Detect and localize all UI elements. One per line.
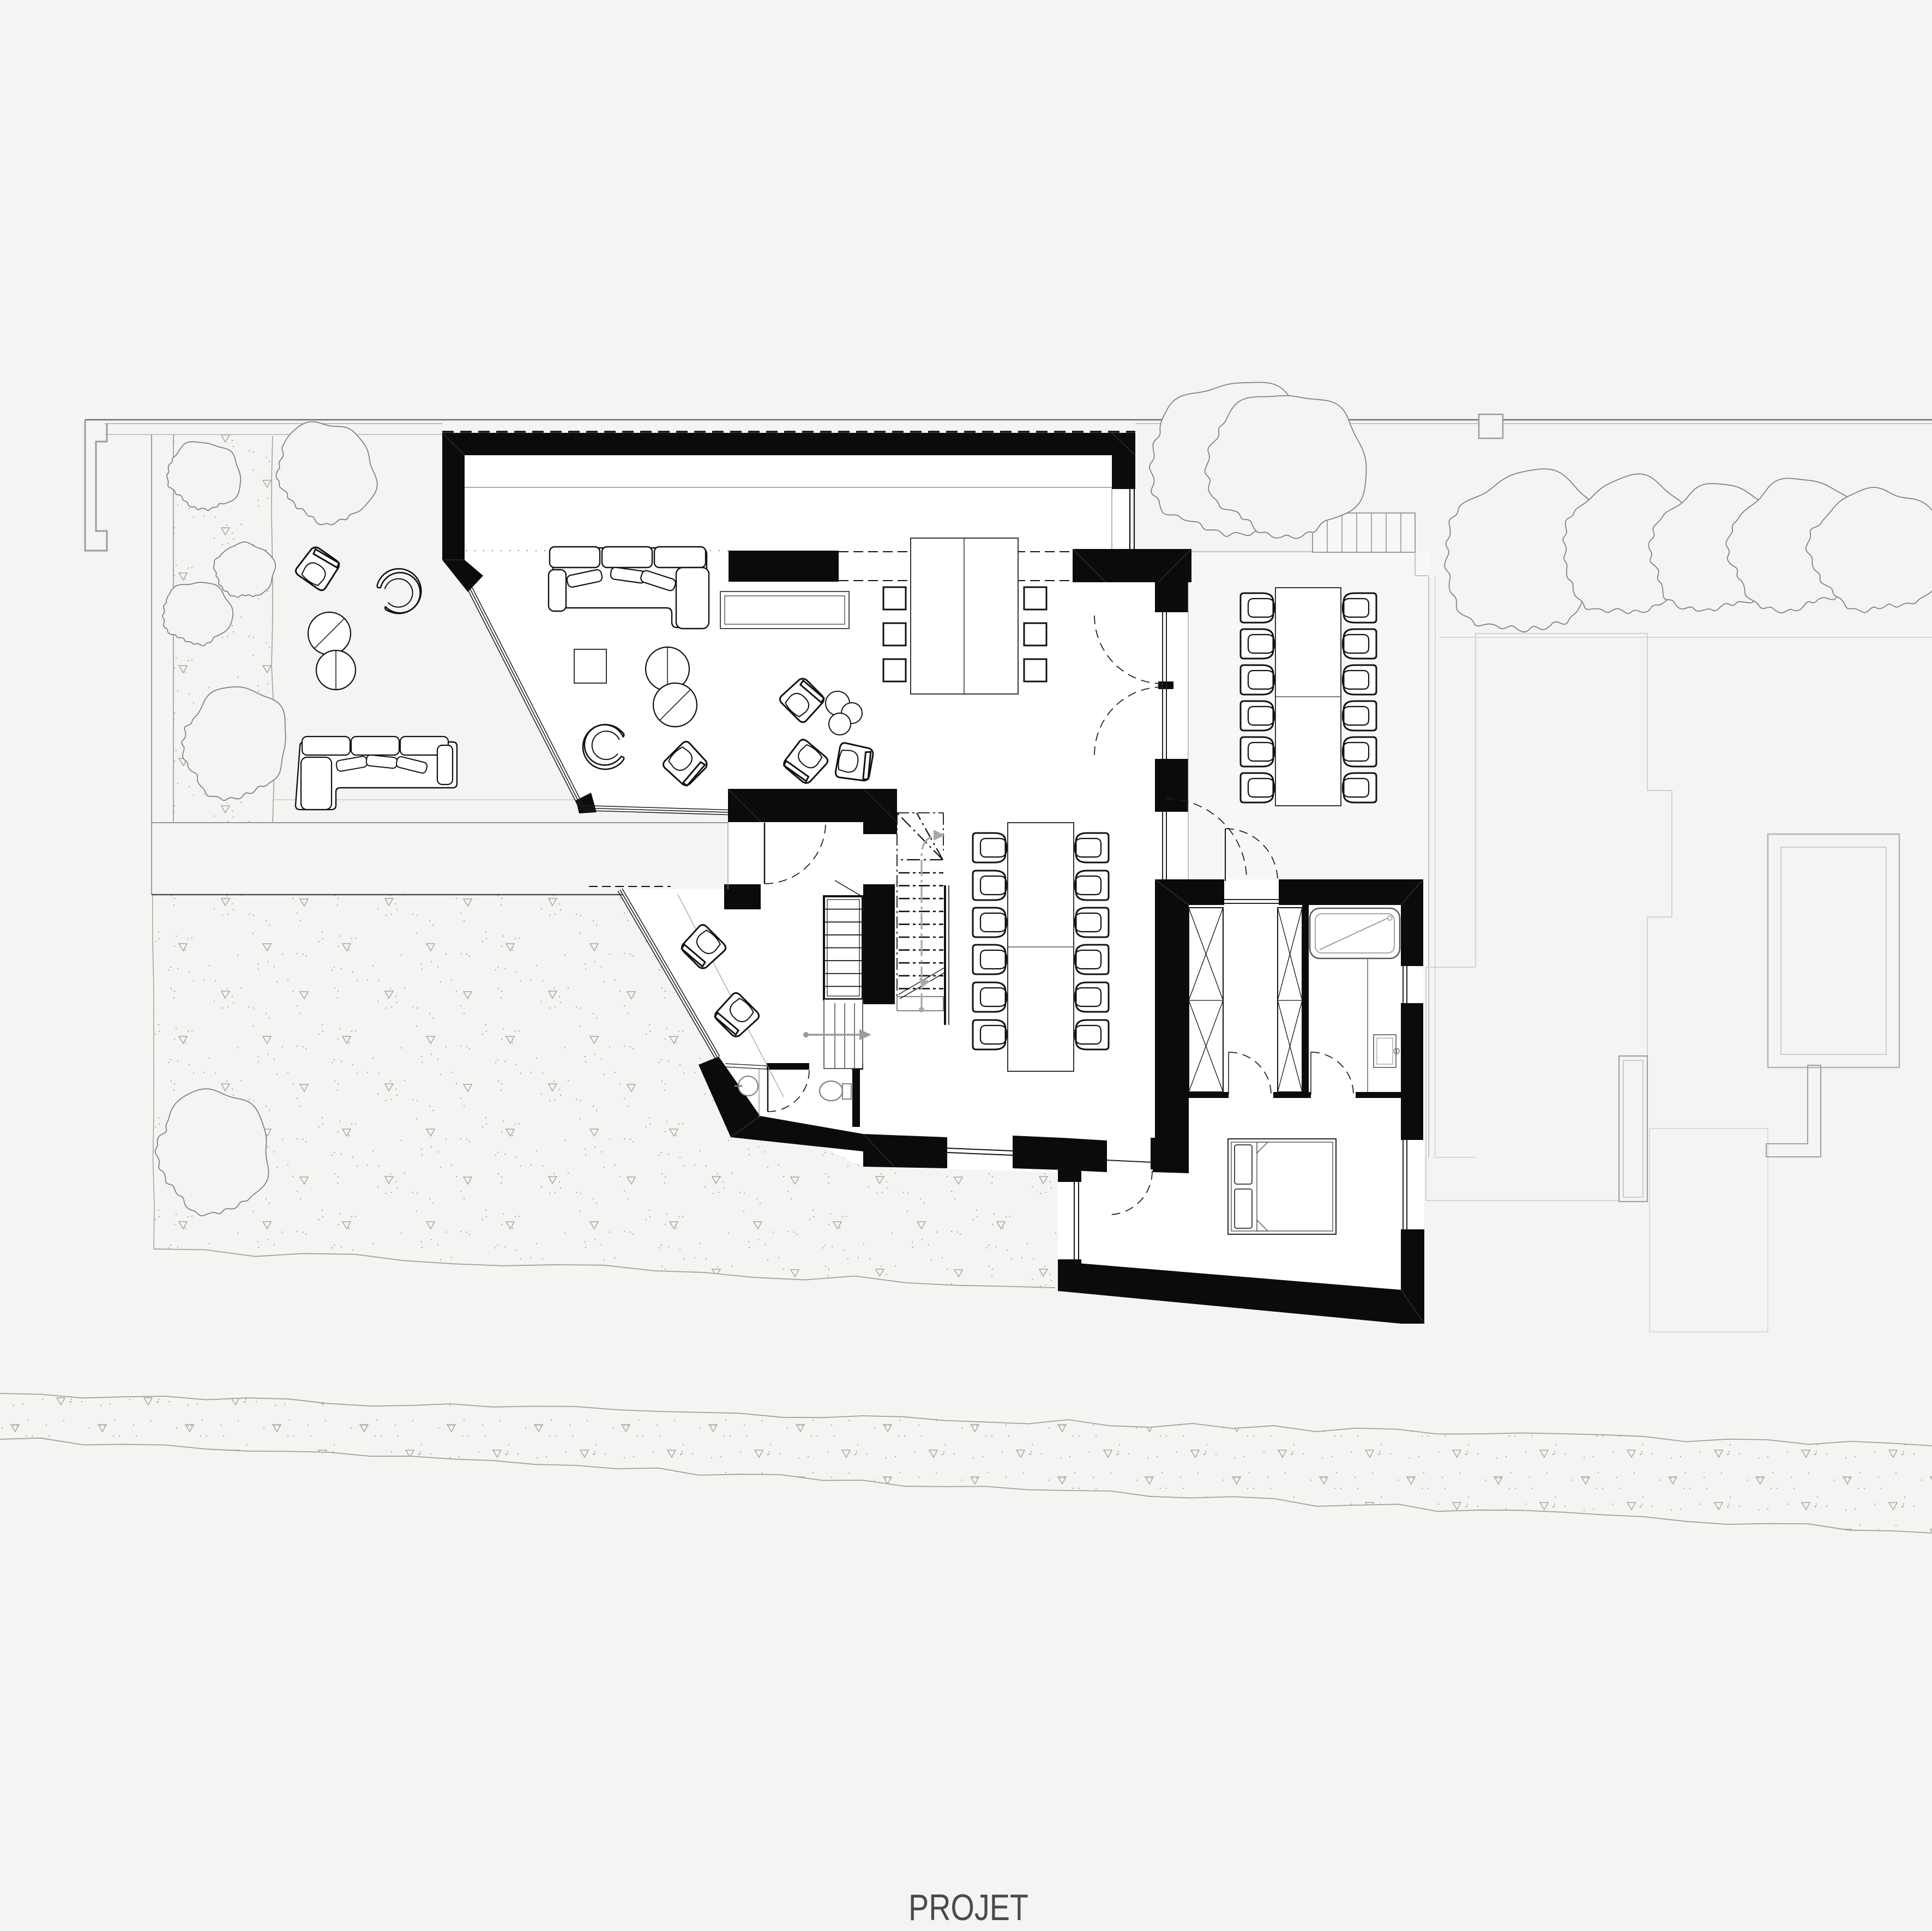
svg-text:PROJET: PROJET — [908, 1887, 1028, 1928]
